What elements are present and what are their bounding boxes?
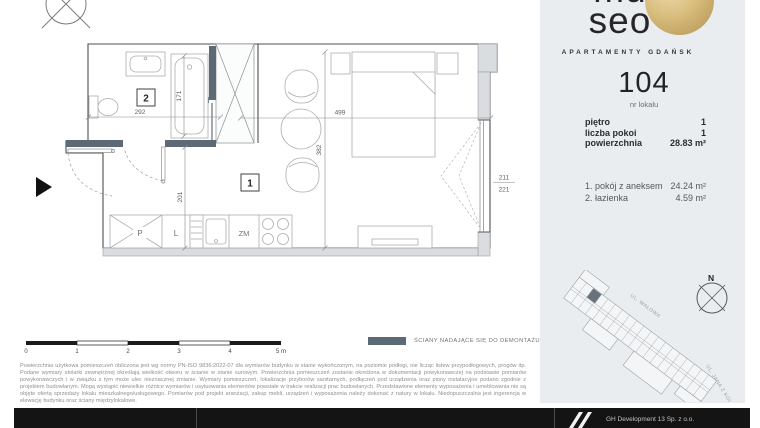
- tv-dresser: [358, 226, 432, 248]
- washer-label: P: [137, 229, 142, 238]
- spec-value: 1: [701, 117, 706, 128]
- fridge-label: L: [174, 229, 179, 238]
- gh-development-logo-icon: [570, 412, 596, 428]
- room-area: 4.59 m²: [675, 193, 706, 205]
- spec-label: piętro: [585, 117, 610, 128]
- dim-room-depth: 382: [316, 144, 323, 155]
- spec-label: liczba pokoi: [585, 128, 637, 139]
- scale-tick-2: 2: [126, 349, 130, 355]
- dishwasher-label: ZM: [239, 229, 250, 238]
- scale-tick-1: 1: [75, 349, 79, 355]
- footer-divider: [196, 408, 197, 428]
- scale-tick-0: 0: [24, 349, 28, 355]
- floor-plan: P L ZM 2 1: [0, 0, 540, 360]
- room-list: 1. pokój z aneksem 24.24 m² 2. łazienka …: [585, 181, 706, 204]
- bathroom-sink: [126, 52, 165, 76]
- svg-text:1: 1: [247, 179, 253, 190]
- dim-bath-width: 292: [135, 109, 146, 116]
- scale-tick-5: 5 m: [276, 349, 286, 355]
- dining-set: [281, 70, 321, 192]
- unit-caption: nr lokalu: [540, 100, 745, 109]
- room-area: 24.24 m²: [670, 181, 706, 193]
- footer-divider: [554, 408, 555, 428]
- scale-tick-3: 3: [177, 349, 181, 355]
- demountable-wall-swatch: [368, 337, 406, 345]
- entrance-marker-icon: [36, 177, 52, 197]
- spec-row-floor: piętro 1: [585, 117, 706, 128]
- footer-bar: GH Development 13 Sp. z o.o.: [14, 408, 750, 428]
- room-number-bath: 2: [137, 89, 155, 106]
- scale-tick-4: 4: [228, 349, 232, 355]
- spec-row-rooms: liczba pokoi 1: [585, 128, 706, 139]
- spec-row-area: powierzchnia 28.83 m²: [585, 138, 706, 149]
- spec-value: 28.83 m²: [670, 138, 706, 149]
- room-row: 1. pokój z aneksem 24.24 m²: [585, 181, 706, 193]
- svg-text:2: 2: [143, 94, 149, 105]
- legend-label: ŚCIANY NADAJĄCE SIĘ DO DEMONTAŻU: [414, 338, 540, 344]
- dim-tub-length: 171: [176, 90, 183, 101]
- site-plan: UL. WAŁOWA UL. JANA Z KOLNA N: [560, 270, 745, 402]
- room-number-main: 1: [241, 174, 259, 191]
- room-row: 2. łazienka 4.59 m²: [585, 193, 706, 205]
- spec-list: piętro 1 liczba pokoi 1 powierzchnia 28.…: [585, 117, 706, 149]
- spec-value: 1: [701, 128, 706, 139]
- unit-number: 104: [540, 67, 745, 100]
- site-building: [560, 270, 723, 402]
- footer-company: GH Development 13 Sp. z o.o.: [606, 416, 694, 423]
- dim-room-width: 499: [335, 110, 346, 117]
- brand-tagline: APARTAMENTY GDAŃSK: [540, 49, 716, 56]
- room-name: 1. pokój z aneksem: [585, 181, 663, 193]
- street-label-top: UL. WAŁOWA: [629, 293, 662, 320]
- shaft: [216, 44, 258, 143]
- dim-window-upper: 211: [499, 175, 510, 182]
- dim-kitchen-depth: 201: [177, 191, 184, 202]
- plan-compass-icon: [42, 0, 90, 28]
- scale-bar: 0 1 2 3 4 5 m: [24, 341, 286, 355]
- spec-label: powierzchnia: [585, 138, 642, 149]
- compass-icon: [697, 283, 727, 313]
- compass-n-label: N: [708, 273, 714, 283]
- dim-window-lower: 221: [499, 187, 510, 194]
- info-panel: mu seo APARTAMENTY GDAŃSK 104 nr lokalu …: [540, 0, 745, 403]
- room-name: 2. łazienka: [585, 193, 628, 205]
- disclaimer-text: Powierzchnia użytkowa pomieszczeń oblicz…: [20, 363, 526, 405]
